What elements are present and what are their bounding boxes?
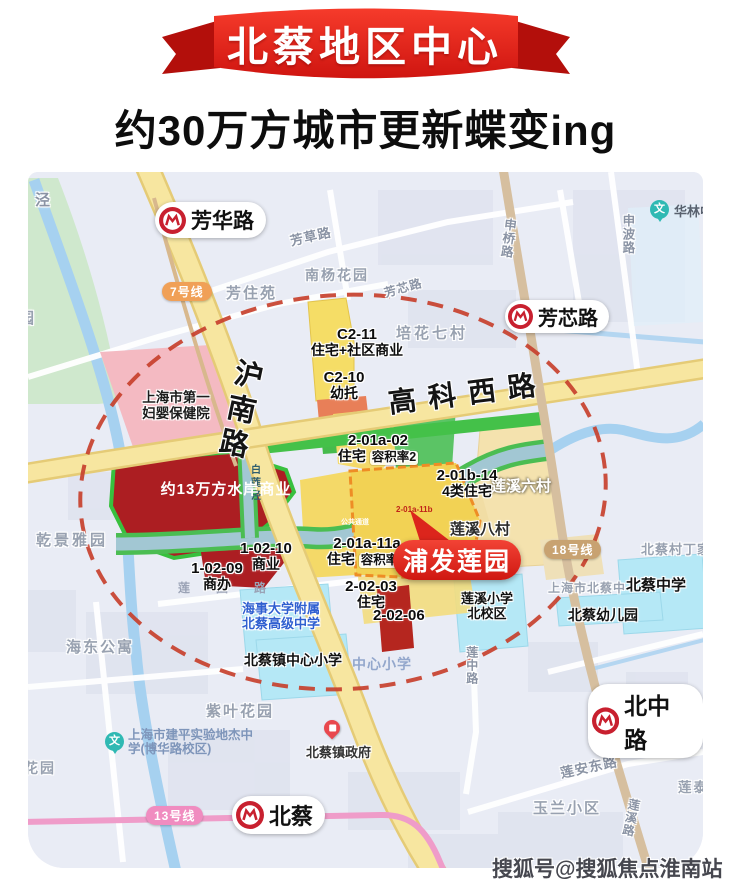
school-label-beicai-zhongxue: 北蔡中学 (626, 577, 686, 594)
school-pin-icon-hualin: 文 (650, 200, 669, 219)
area-label-liantai: 莲泰苑 (678, 780, 703, 796)
shanghai-metro-logo-icon (236, 801, 264, 829)
school-label-zhongxin-xiaoxue: 中心小学 (352, 656, 412, 672)
page-subtitle: 约30万方城市更新蝶变ing (0, 97, 731, 158)
watermark: 搜狐号@搜狐焦点淮南站 (492, 853, 722, 883)
zone-code: 2-01b-14 (434, 468, 500, 484)
station-name: 芳芯路 (538, 302, 598, 331)
zone-use: 住宅+社区商业 (296, 343, 418, 358)
school-label-beicai-youer: 北蔡幼儿园 (568, 607, 638, 623)
line7-badge: 7号线 (162, 282, 212, 301)
station-fanghua: 芳华路 (155, 202, 266, 238)
planning-map: 泾 园 花园 芳草路 芳芯路 申波路 申桥路 沪南路 高科西路 莲园路 莲中路 … (28, 172, 703, 868)
area-label-qianjing: 乾景雅园 (36, 532, 108, 549)
road-label-shenbo: 申波路 (620, 214, 634, 255)
river-label-jing: 泾 (35, 192, 51, 209)
station-name: 芳华路 (191, 205, 254, 235)
zone-use: 幼托 (316, 386, 372, 401)
zone-label-2-01a-02: 2-01a-02 住宅 容积率2 (334, 433, 422, 465)
shanghai-metro-logo-icon (592, 707, 619, 735)
area-label-lianxi8: 莲溪八村 (450, 521, 510, 538)
zone-code: 1-02-09 (186, 561, 248, 577)
school-glyph: 文 (654, 203, 665, 215)
area-label-beicaicun: 北蔡村丁家 (641, 543, 703, 558)
label-zhengfu: 北蔡镇政府 (306, 746, 371, 761)
project-callout-bubble: 浦发莲园 (393, 540, 521, 580)
greenway-note: 公共通道 (341, 519, 369, 527)
zone-code: 2-01a-02 (334, 433, 422, 449)
line18-badge: 18号线 (544, 540, 601, 559)
area-label-ziye: 紫叶花园 (206, 703, 274, 720)
area-label-nanyang: 南杨花园 (305, 267, 369, 283)
school-label-zhen-xiaoxue: 北蔡镇中心小学 (244, 652, 342, 668)
line13-badge: 13号线 (146, 806, 203, 825)
zone-label-c2-11: C2-11 住宅+社区商业 (296, 327, 418, 358)
area-label-yulan: 玉兰小区 (533, 800, 601, 817)
school-pin-icon: 文 (105, 732, 124, 751)
school-label-hualin: 华林中学 (674, 205, 703, 220)
school-label-jianping: 上海市建平实验地杰中学(博华路校区) (128, 728, 262, 757)
zone-code: 1-02-10 (235, 541, 297, 557)
zone-use: 住宅 (338, 448, 366, 464)
shanghai-metro-logo-icon (508, 304, 533, 329)
station-beizhong: 北中路 (588, 684, 703, 758)
banner-title: 北蔡地区中心 (212, 21, 518, 73)
station-beicai: 北蔡 (232, 796, 325, 834)
area-label-haidong: 海东公寓 (66, 639, 134, 656)
road-label-lianzhong: 莲中路 (464, 646, 478, 685)
zone-label-2-01a-11b: 2-01a-11b (396, 506, 432, 514)
station-fangxin: 芳芯路 (505, 300, 609, 333)
area-label-lianxi6: 莲溪六村 (491, 478, 551, 495)
zone-label-2-02-03: 2-02-03 住宅 (341, 579, 401, 610)
zone-code: C2-10 (316, 370, 372, 386)
title-ribbon: 北蔡地区中心 (154, 5, 578, 91)
far-chip: 容积率2 (370, 451, 418, 465)
zone-use: 4类住宅 (434, 484, 500, 499)
area-label-huayuan-partial: 花园 (28, 760, 56, 776)
zone-label-waterfront: 约13万方水岸商业 (154, 481, 298, 498)
zone-use: 商办 (186, 577, 248, 592)
shanghai-metro-logo-icon (159, 207, 186, 234)
zone-label-c2-10: C2-10 幼托 (316, 370, 372, 401)
zone-label-1-02-09: 1-02-09 商办 (186, 561, 248, 592)
station-name: 北蔡 (269, 799, 313, 831)
station-name: 北中路 (624, 687, 691, 755)
area-label-shanghai-beicai: 上海市北蔡中 (548, 582, 626, 596)
zone-code: C2-11 (296, 327, 418, 343)
area-label-fangzhuyuan: 芳住苑 (226, 285, 277, 302)
school-glyph: 文 (109, 735, 120, 747)
area-label-yuan-partial: 园 (28, 310, 36, 327)
school-label-lianxi-xiaoxue: 莲溪小学北校区 (458, 592, 516, 622)
hospital-label: 上海市第一妇婴保健院 (136, 390, 216, 421)
school-label-haishi: 海事大学附属北蔡高级中学 (241, 602, 321, 632)
zone-use: 住宅 (327, 551, 355, 567)
zone-label-2-01b-14: 2-01b-14 4类住宅 (434, 468, 500, 499)
zone-label-2-02-06: 2-02-06 (373, 608, 425, 624)
zone-code: 2-02-03 (341, 579, 401, 595)
